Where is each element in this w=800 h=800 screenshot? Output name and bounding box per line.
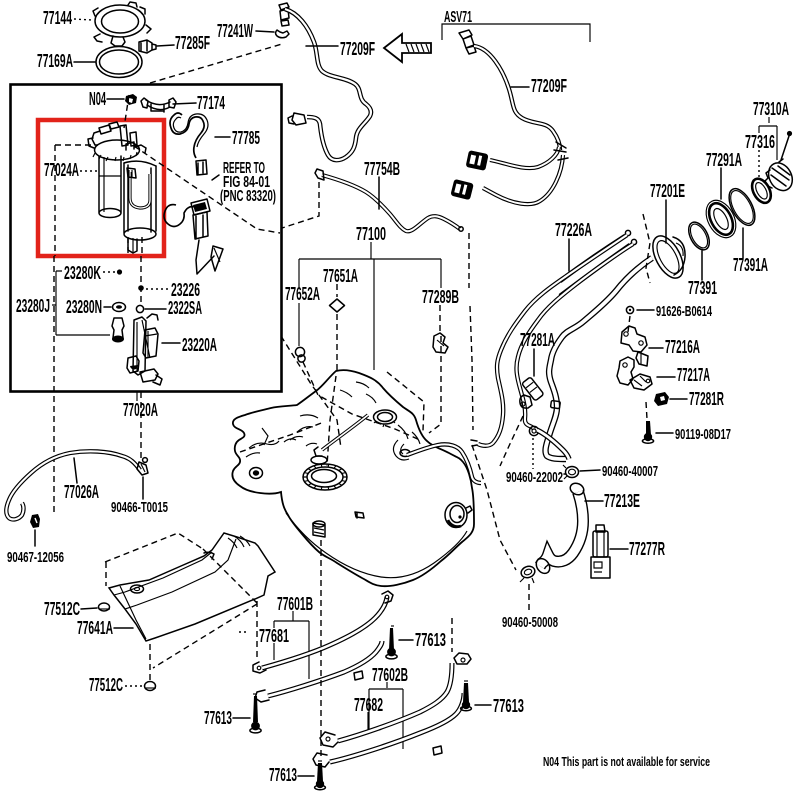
svg-text:77241W: 77241W	[217, 21, 253, 41]
svg-text:77652A: 77652A	[285, 284, 320, 304]
svg-text:91626-B0614: 91626-B0614	[656, 303, 712, 320]
svg-text:77601B: 77601B	[277, 594, 313, 614]
svg-text:77217A: 77217A	[677, 365, 710, 385]
svg-text:77169A: 77169A	[37, 51, 73, 71]
svg-text:77310A: 77310A	[753, 99, 789, 119]
svg-text:77391: 77391	[688, 278, 717, 298]
svg-text:77681: 77681	[259, 626, 289, 646]
svg-text:77682: 77682	[354, 695, 383, 715]
svg-text:77281A: 77281A	[520, 330, 555, 350]
svg-text:90460-22002: 90460-22002	[506, 469, 563, 486]
svg-text:77209F: 77209F	[340, 39, 375, 59]
svg-text:77613: 77613	[204, 708, 232, 728]
svg-text:23280K: 23280K	[64, 263, 101, 283]
svg-text:77602B: 77602B	[372, 665, 408, 685]
svg-text:77226A: 77226A	[555, 220, 592, 240]
svg-text:77174: 77174	[197, 93, 225, 113]
svg-text:2322SA: 2322SA	[168, 298, 202, 318]
svg-text:90467-12056: 90467-12056	[7, 549, 64, 566]
svg-text:77285F: 77285F	[175, 33, 210, 53]
svg-text:77641A: 77641A	[77, 618, 113, 638]
svg-text:77281R: 77281R	[689, 389, 724, 409]
svg-text:77754B: 77754B	[364, 159, 400, 179]
svg-text:23226: 23226	[171, 280, 200, 300]
svg-text:23280N: 23280N	[66, 297, 102, 317]
svg-text:77213E: 77213E	[604, 491, 640, 511]
svg-text:77316: 77316	[745, 132, 775, 152]
svg-text:23280J: 23280J	[16, 296, 50, 316]
svg-text:77277R: 77277R	[629, 539, 665, 559]
svg-text:N04 This part is not available: N04 This part is not available for servi…	[543, 754, 710, 769]
svg-text:(PNC 83320): (PNC 83320)	[220, 188, 276, 205]
svg-text:77613: 77613	[415, 630, 446, 650]
svg-text:77026A: 77026A	[64, 482, 99, 502]
svg-text:77613: 77613	[269, 765, 297, 785]
svg-text:77289B: 77289B	[422, 287, 459, 307]
svg-text:77216A: 77216A	[665, 337, 700, 357]
svg-text:77512C: 77512C	[89, 675, 123, 695]
svg-text:23220A: 23220A	[182, 335, 217, 355]
svg-text:90460-40007: 90460-40007	[602, 463, 658, 480]
svg-text:77291A: 77291A	[706, 150, 742, 170]
svg-text:77209F: 77209F	[531, 76, 567, 96]
svg-text:90466-T0015: 90466-T0015	[111, 499, 168, 516]
svg-text:ASV71: ASV71	[444, 9, 472, 26]
svg-text:77020A: 77020A	[123, 400, 158, 420]
svg-text:77144: 77144	[43, 8, 72, 28]
svg-text:77100: 77100	[356, 224, 386, 244]
svg-text:77785: 77785	[232, 128, 260, 148]
svg-text:77391A: 77391A	[733, 255, 768, 275]
svg-text:77651A: 77651A	[323, 266, 358, 286]
svg-text:N04: N04	[89, 89, 106, 109]
svg-text:90460-50008: 90460-50008	[502, 614, 558, 631]
svg-text:90119-08D17: 90119-08D17	[675, 426, 731, 443]
svg-text:77024A: 77024A	[44, 160, 79, 180]
svg-text:77613: 77613	[493, 696, 524, 716]
svg-text:77512C: 77512C	[44, 599, 80, 619]
svg-text:77201E: 77201E	[650, 181, 685, 201]
